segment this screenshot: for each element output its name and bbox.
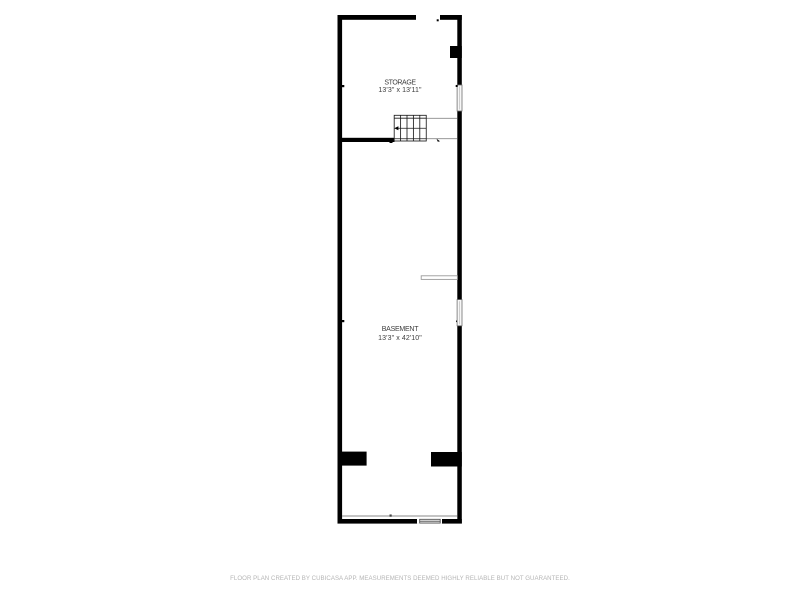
svg-text:13'3" x 13'11": 13'3" x 13'11" [378, 87, 422, 94]
svg-text:STORAGE: STORAGE [384, 79, 416, 86]
svg-text:13'3" x 42'10": 13'3" x 42'10" [378, 335, 422, 342]
svg-text:FLOOR PLAN CREATED BY CUBICASA: FLOOR PLAN CREATED BY CUBICASA APP. MEAS… [230, 575, 570, 582]
svg-text:BASEMENT: BASEMENT [382, 326, 419, 333]
